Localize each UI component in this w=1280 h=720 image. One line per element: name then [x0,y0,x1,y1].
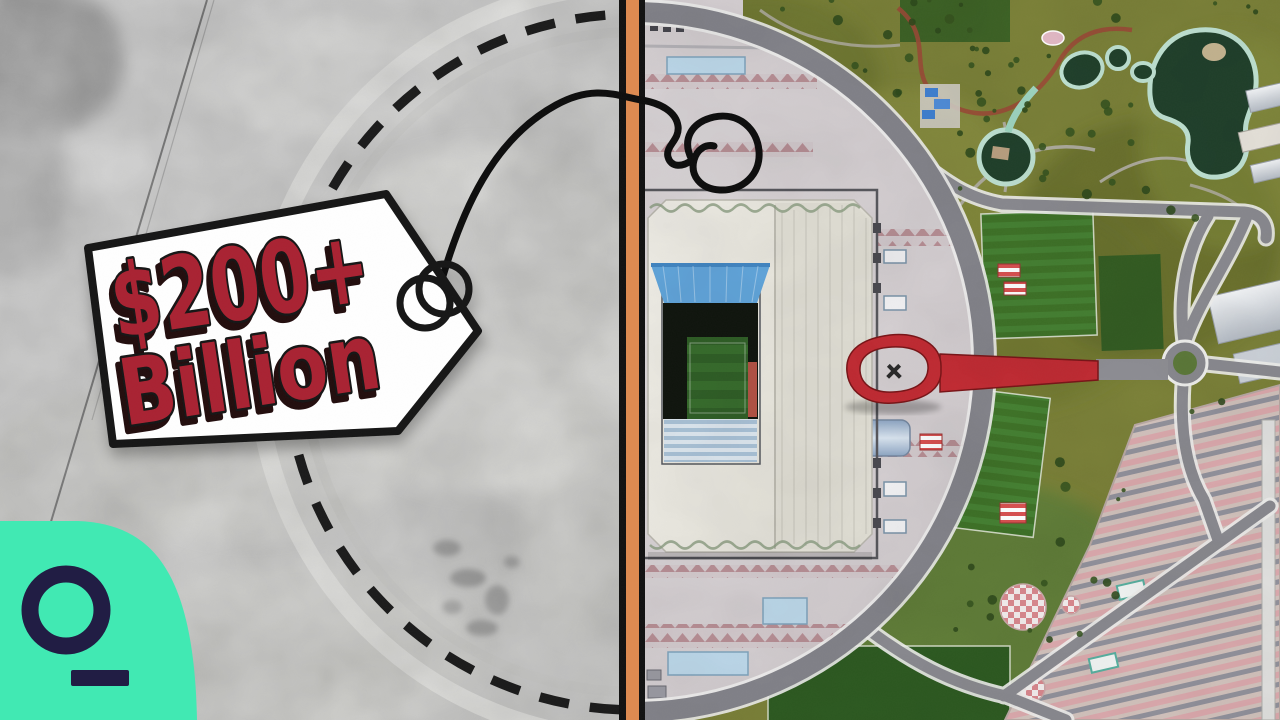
logo-q-bar-icon [71,670,129,686]
video-thumbnail: $200+ Billion $200+ Billion [0,0,1280,720]
film-grain [0,0,1280,720]
